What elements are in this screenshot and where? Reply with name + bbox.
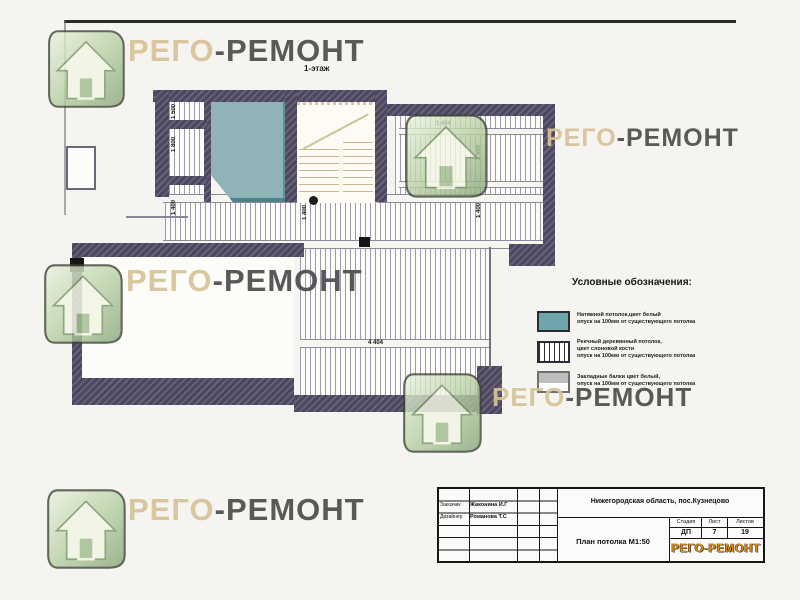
wall [204, 102, 211, 202]
legend-swatch-wood-slat [537, 341, 570, 363]
sheet-value: 7 [702, 529, 727, 536]
ceiling-beam [300, 339, 489, 348]
wall [509, 244, 555, 266]
legend-item-text: Натяжной потолок,цвет белый опуск на 100… [577, 312, 695, 326]
dimension-label: 4 404 [368, 340, 383, 346]
dimension-label: 1 500 [171, 104, 177, 119]
column-marker [359, 237, 370, 247]
person-name: Жаконина И.Г [470, 502, 507, 508]
brand-right: -РЕМОНТ [215, 492, 365, 527]
legend-line: Натяжной потолок,цвет белый [577, 312, 695, 319]
wall [72, 378, 294, 405]
house-watermark-icon [400, 371, 484, 455]
stretch-ceiling-room [210, 102, 286, 202]
project-region: Нижегородская область, пос.Кузнецово [557, 498, 763, 505]
sheets-value: 19 [728, 529, 762, 536]
legend-line: опуск на 100мм от существующего потолка [577, 319, 695, 326]
dimension-label: 1 800 [171, 137, 177, 152]
house-watermark-icon [44, 487, 128, 571]
legend-line: цвет слоновой кости [577, 346, 695, 353]
drawing-sheet: 1-этаж [0, 0, 800, 600]
wall [167, 120, 207, 129]
brand-watermark: РЕГО-РЕМОНТ [126, 263, 363, 299]
brand-left: РЕГО [128, 492, 215, 527]
stair-treads [343, 138, 373, 198]
legend-line: Закладные балки цвет белый, [577, 374, 695, 381]
dimension-label: 1 400 [476, 203, 482, 218]
legend-line: Реечный деревянный потолок, [577, 339, 695, 346]
logo-left: РЕГО [671, 543, 704, 555]
wall [72, 243, 304, 257]
wall-line [489, 247, 491, 369]
house-watermark-icon [401, 112, 491, 200]
drawing-title: План потолка М1:50 [557, 537, 669, 546]
company-logo: РЕГО-РЕМОНТ [669, 543, 763, 555]
stair-treads [299, 146, 339, 198]
door-leaf [126, 216, 188, 218]
brand-left: РЕГО [492, 382, 565, 412]
brand-watermark: РЕГО-РЕМОНТ [546, 124, 739, 153]
sheet-frame-top [64, 20, 736, 23]
logo-right: -РЕМОНТ [704, 543, 761, 555]
person-role: Дизайнер [440, 514, 462, 520]
legend-swatch-stretch-ceiling [537, 311, 570, 332]
brand-watermark: РЕГО-РЕМОНТ [128, 492, 365, 528]
brand-right: -РЕМОНТ [565, 382, 692, 412]
brand-watermark: РЕГО-РЕМОНТ [492, 382, 692, 413]
legend-item-text: Реечный деревянный потолок, цвет слоново… [577, 339, 695, 360]
stage-header: Стадия [671, 519, 701, 525]
legend-line: опуск на 100мм от существующего потолка [577, 353, 695, 360]
brand-watermark: РЕГО-РЕМОНТ [128, 33, 365, 69]
sheets-header: Листов [728, 519, 762, 525]
stair-newel [309, 196, 318, 205]
dimension-label: 1 400 [302, 205, 308, 220]
person-role: Заказчик [440, 502, 461, 508]
brand-left: РЕГО [128, 33, 215, 68]
house-watermark-icon [41, 262, 125, 346]
window-bay [66, 146, 96, 190]
person-name: Романова Т.С [470, 514, 507, 520]
sheet-header: Лист [702, 519, 727, 525]
title-block: Заказчик Жаконина И.Г Дизайнер Романова … [437, 487, 765, 563]
wall [167, 176, 207, 185]
legend-title: Условные обозначения: [572, 277, 692, 288]
brand-left: РЕГО [126, 263, 213, 298]
dimension-label: 1 400 [171, 200, 177, 215]
wall [375, 90, 387, 202]
brand-left: РЕГО [546, 124, 617, 152]
house-watermark-icon [45, 28, 127, 110]
wall [153, 90, 387, 102]
brand-right: -РЕМОНТ [215, 33, 365, 68]
wall [285, 90, 297, 202]
brand-right: -РЕМОНТ [213, 263, 363, 298]
brand-right: -РЕМОНТ [617, 124, 739, 152]
stage-value: ДП [671, 529, 701, 536]
